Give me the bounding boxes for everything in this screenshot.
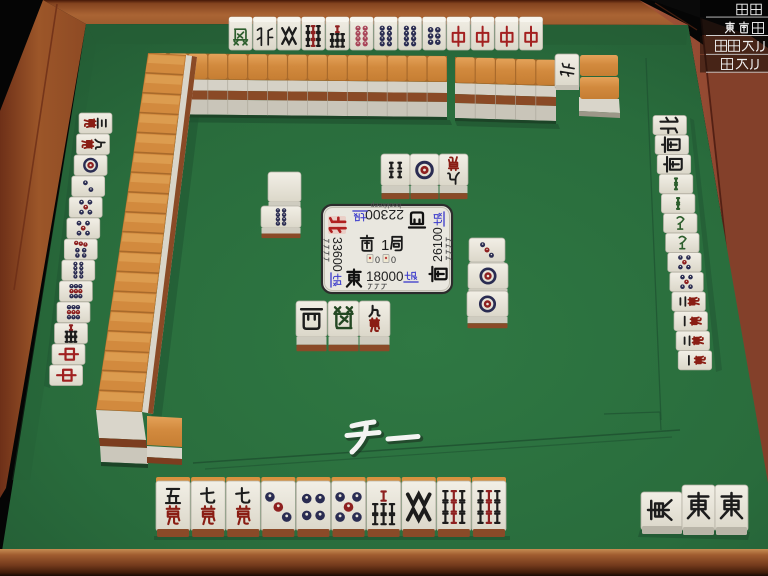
svg-text:1: 1 <box>381 237 389 254</box>
svg-text:18000: 18000 <box>366 269 404 284</box>
svg-text:0: 0 <box>375 255 380 265</box>
svg-text:22300: 22300 <box>365 207 404 223</box>
svg-text:33600: 33600 <box>330 237 344 272</box>
svg-text:26100: 26100 <box>431 227 445 262</box>
svg-text:bookkeep: bookkeep <box>371 201 401 208</box>
svg-text:0: 0 <box>391 255 396 265</box>
